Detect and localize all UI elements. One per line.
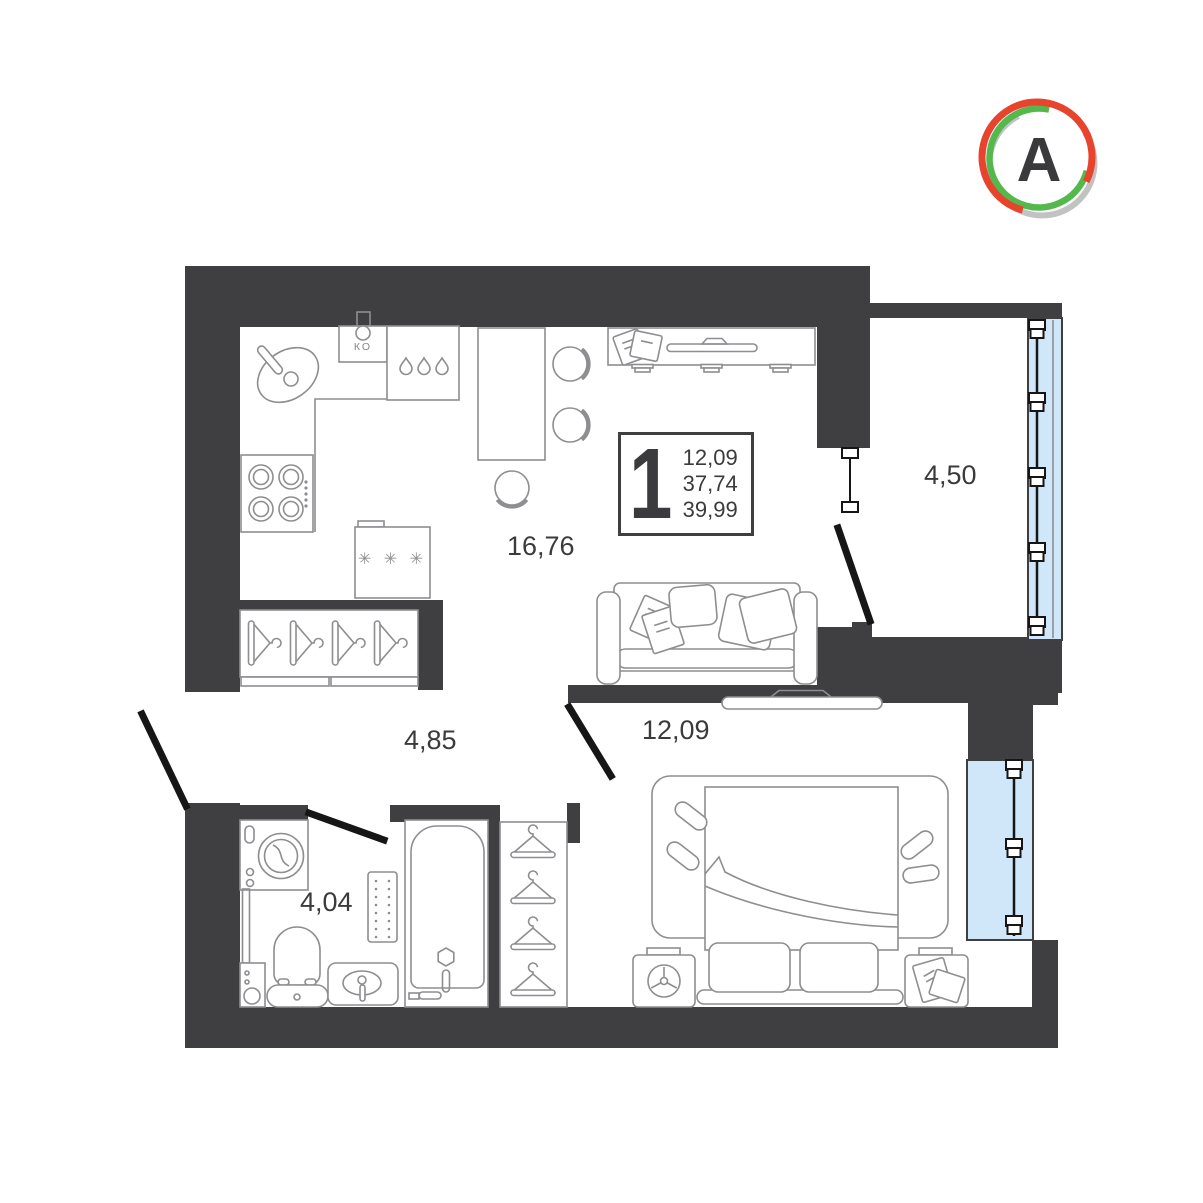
toilet — [267, 927, 328, 1007]
vent-label: КО — [339, 341, 387, 353]
dishwasher — [387, 326, 459, 400]
living-area: 12,09 — [683, 445, 738, 471]
balcony-door — [838, 528, 870, 621]
logo: A — [972, 92, 1108, 228]
hanger-icon — [511, 871, 555, 904]
washing-machine — [240, 820, 308, 890]
room-label-hallway: 4,85 — [404, 727, 457, 754]
window-handle-icon — [1006, 839, 1022, 857]
bathroom-cabinet — [240, 889, 265, 1007]
tv-stand — [608, 328, 815, 372]
chair-icon — [495, 471, 529, 507]
room-label-balcony: 4,50 — [924, 462, 977, 489]
sofa — [597, 583, 817, 684]
towel-radiator — [368, 872, 397, 942]
hall-wardrobe — [240, 610, 418, 686]
balcony-glazing — [1028, 318, 1062, 640]
kitchen-counter — [315, 399, 459, 532]
logo-letter: A — [1017, 126, 1062, 195]
window-handle-icon — [1029, 543, 1045, 561]
bathroom-sink — [328, 963, 398, 1005]
nightstand-right — [905, 948, 968, 1007]
room-label-bathroom: 4,04 — [300, 889, 353, 916]
bathtub — [405, 820, 488, 1007]
apartment-info-box: 1 12,09 37,74 39,99 — [618, 432, 754, 536]
chair-icon — [553, 408, 589, 442]
kitchen-sink — [247, 336, 329, 413]
window-handle-icon — [1029, 468, 1045, 486]
window-handle-icon — [1006, 916, 1022, 934]
balcony-window-unit — [842, 448, 858, 512]
hanger-icon — [511, 917, 555, 950]
dining-table — [478, 328, 545, 460]
fridge-snowflakes: ✳ ✳ ✳ — [355, 549, 430, 569]
window-handle-icon — [1029, 393, 1045, 411]
apartment-area: 37,74 — [683, 471, 738, 497]
window-handle-icon — [1006, 760, 1022, 778]
entrance-door — [142, 714, 186, 806]
stove — [241, 455, 313, 532]
closet — [500, 822, 567, 1007]
bedroom-window — [967, 760, 1033, 940]
room-label-bedroom: 12,09 — [642, 717, 710, 744]
areas-list: 12,09 37,74 39,99 — [683, 445, 738, 523]
window-handle-icon — [1029, 617, 1045, 635]
total-area: 39,99 — [683, 497, 738, 523]
bedroom-door — [569, 707, 611, 776]
hanger-icon — [511, 825, 555, 858]
chair-icon — [553, 347, 589, 381]
bed — [652, 776, 948, 1004]
bathroom-door — [309, 813, 384, 840]
room-label-kitchen-living: 16,76 — [507, 533, 575, 560]
window-handle-icon — [1029, 320, 1045, 338]
floor-plan-page: 16,76 4,50 4,85 12,09 4,04 КО ✳ ✳ ✳ 1 12… — [0, 0, 1203, 1203]
hanger-icon — [511, 963, 555, 996]
rooms-count: 1 — [629, 443, 669, 525]
nightstand-left — [633, 948, 695, 1007]
